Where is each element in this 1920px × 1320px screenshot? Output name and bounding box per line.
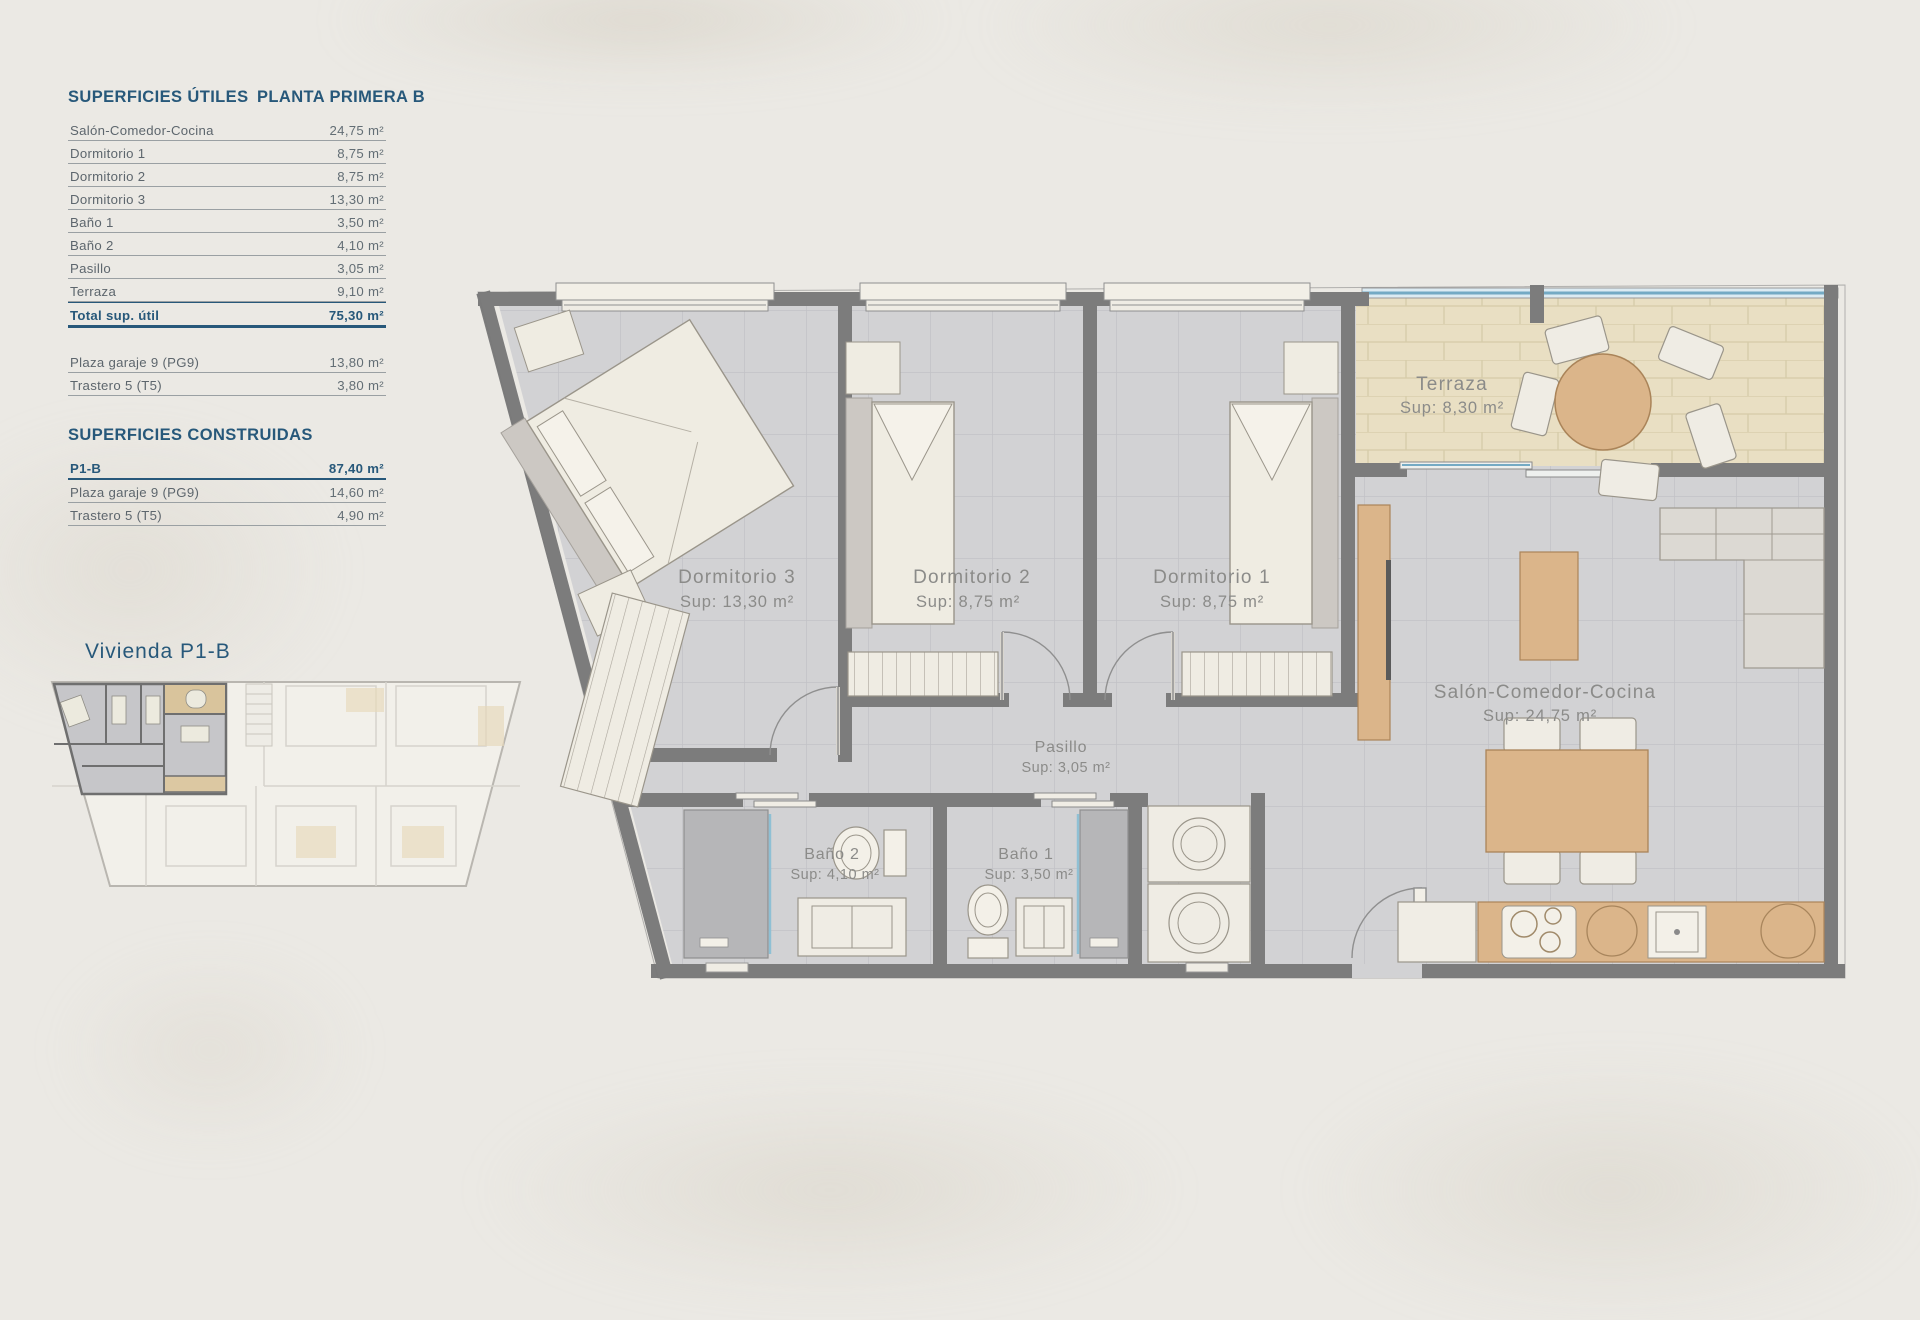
window-dormitorio-1 [1104,283,1310,311]
nightstand [846,342,900,394]
room-label-dormitorio-3: Dormitorio 3 [678,567,796,588]
room-label-bano-2: Baño 2 [804,846,860,863]
room-label-bano-1: Baño 1 [998,846,1054,863]
hob [1502,906,1576,958]
tv-screen [1386,560,1391,680]
round-table [1555,354,1651,450]
laundry-units [1148,806,1250,962]
main-floor-plan: Dormitorio 3 Sup: 13,30 m² Dormitorio 2 … [0,0,1920,1280]
bath-vent-window [706,963,748,972]
floor-plan-sheet: { "page": { "background": "#ebe9e4", "ac… [0,0,1920,1280]
shower [1080,810,1128,958]
room-label-pasillo: Pasillo [1035,739,1088,756]
kitchen-sink [1648,906,1706,958]
terrace-balustrade [1362,288,1838,298]
room-label-terraza: Terraza [1416,374,1488,395]
closet-dormitorio2 [848,652,998,696]
kitchen-counter [1398,902,1824,962]
shower [684,810,768,958]
nightstand [1284,342,1338,394]
room-sup-bano-1: Sup: 3,50 m² [984,867,1073,883]
room-sup-dormitorio-2: Sup: 8,75 m² [916,593,1020,611]
room-sup-dormitorio-3: Sup: 13,30 m² [680,593,794,611]
washbasin [798,898,906,956]
toilet [968,885,1008,958]
washbasin [1016,898,1072,956]
window-dormitorio-3 [556,283,774,311]
room-label-salon: Salón-Comedor-Cocina [1434,682,1657,703]
room-sup-terraza: Sup: 8,30 m² [1400,399,1504,417]
room-label-dormitorio-2: Dormitorio 2 [913,567,1031,588]
fridge [1398,902,1476,962]
room-sup-bano-2: Sup: 4,10 m² [790,867,879,883]
dining-table [1486,750,1648,852]
room-sup-salon: Sup: 24,75 m² [1483,707,1597,725]
room-label-dormitorio-1: Dormitorio 1 [1153,567,1271,588]
bath-vent-window [1186,963,1228,972]
room-sup-dormitorio-1: Sup: 8,75 m² [1160,593,1264,611]
closet-dormitorio1 [1182,652,1332,696]
tv-unit [1358,505,1390,740]
window-dormitorio-2 [860,283,1066,311]
cabinet [1520,552,1578,660]
room-sup-pasillo: Sup: 3,05 m² [1021,760,1110,776]
